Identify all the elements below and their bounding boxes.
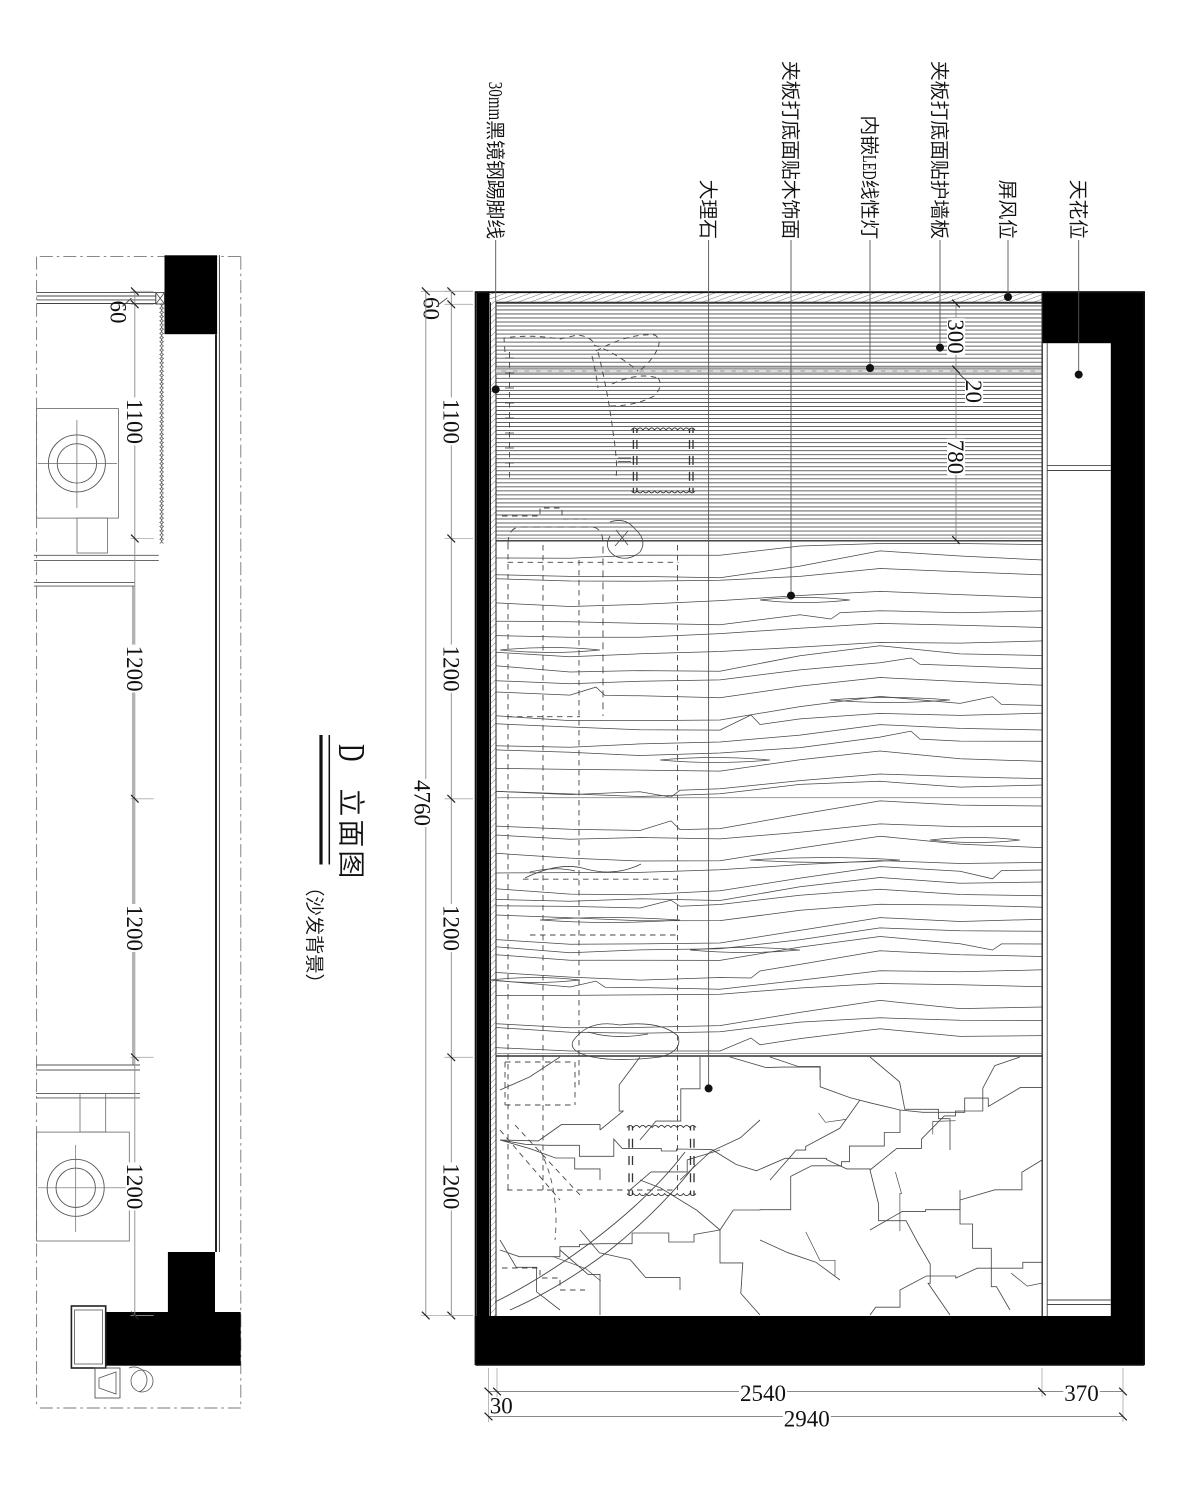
svg-text:1200: 1200 [122,646,147,692]
svg-text:1200: 1200 [438,1163,463,1209]
svg-text:4760: 4760 [410,780,435,826]
svg-text:2940: 2940 [784,1407,830,1432]
svg-text:1200: 1200 [122,905,147,951]
svg-text:D: D [330,744,372,762]
svg-text:1200: 1200 [438,905,463,951]
svg-text:30mm: 30mm [484,82,506,121]
svg-text:60: 60 [419,297,444,320]
svg-text:1200: 1200 [122,1163,147,1209]
svg-text:20: 20 [961,380,986,403]
svg-text:60: 60 [106,301,131,324]
svg-text:2540: 2540 [740,1381,786,1406]
svg-text:370: 370 [1064,1381,1099,1406]
svg-text:1200: 1200 [438,646,463,692]
svg-text:1100: 1100 [438,399,463,444]
svg-text:30: 30 [490,1394,513,1419]
svg-text:300: 300 [943,319,968,354]
svg-text:LED: LED [858,155,880,180]
svg-text:780: 780 [943,440,968,475]
svg-text:1100: 1100 [122,399,147,444]
